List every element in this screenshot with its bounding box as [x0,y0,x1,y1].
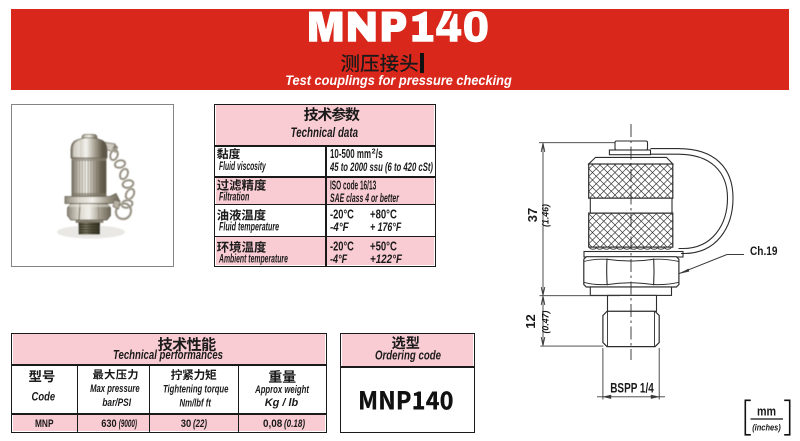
svg-text:Ordering code: Ordering code [375,349,441,363]
svg-text:Fluid temperature: Fluid temperature [219,220,279,234]
svg-text:(1.46): (1.46) [541,204,551,227]
svg-text:(22): (22) [193,418,207,430]
svg-text:BSPP 1/4: BSPP 1/4 [610,380,654,395]
svg-text:Technical data: Technical data [291,125,359,140]
svg-text:Tightening torque: Tightening torque [163,383,229,395]
svg-text:Filtration: Filtration [219,189,249,203]
svg-text:Code: Code [32,390,56,403]
svg-text:-4°F: -4°F [330,252,348,266]
svg-text:bar/PSI: bar/PSI [102,397,131,409]
svg-text:-4°F: -4°F [330,220,349,234]
svg-text:Max pressure: Max pressure [90,383,140,395]
svg-text:Approx weight: Approx weight [254,384,309,396]
svg-text:MNP: MNP [35,418,54,430]
svg-text:+122°F: +122°F [370,252,402,266]
svg-text:+ 176°F: + 176°F [370,220,402,234]
svg-text:Technical performances: Technical performances [113,347,223,362]
svg-text:Test couplings for pressure ch: Test couplings for pressure checking [285,73,512,88]
svg-text:(inches): (inches) [752,423,781,433]
svg-text:0,08: 0,08 [263,418,282,430]
svg-text:(0.18): (0.18) [284,418,305,430]
svg-text:Kg / lb: Kg / lb [265,397,299,409]
svg-text:(9000): (9000) [119,418,137,430]
svg-text:37: 37 [525,208,540,222]
svg-text:12: 12 [523,314,538,328]
svg-text:mm: mm [757,404,776,418]
svg-text:Nm/lbf ft: Nm/lbf ft [180,397,212,409]
svg-text:10-500 mm: 10-500 mm [330,147,371,161]
svg-text:30: 30 [181,418,192,430]
svg-text:/s: /s [376,147,383,161]
svg-text:SAE class 4 or better: SAE class 4 or better [330,191,400,205]
svg-text:(0.47): (0.47) [541,310,551,333]
svg-text:630: 630 [101,418,116,430]
svg-text:Fluid viscosity: Fluid viscosity [219,159,266,173]
svg-text:Ambient temperature: Ambient temperature [218,252,288,266]
svg-text:45 to 2000 ssu (6 to 420 cSt): 45 to 2000 ssu (6 to 420 cSt) [329,160,433,174]
svg-text:Ch.19: Ch.19 [750,246,778,258]
